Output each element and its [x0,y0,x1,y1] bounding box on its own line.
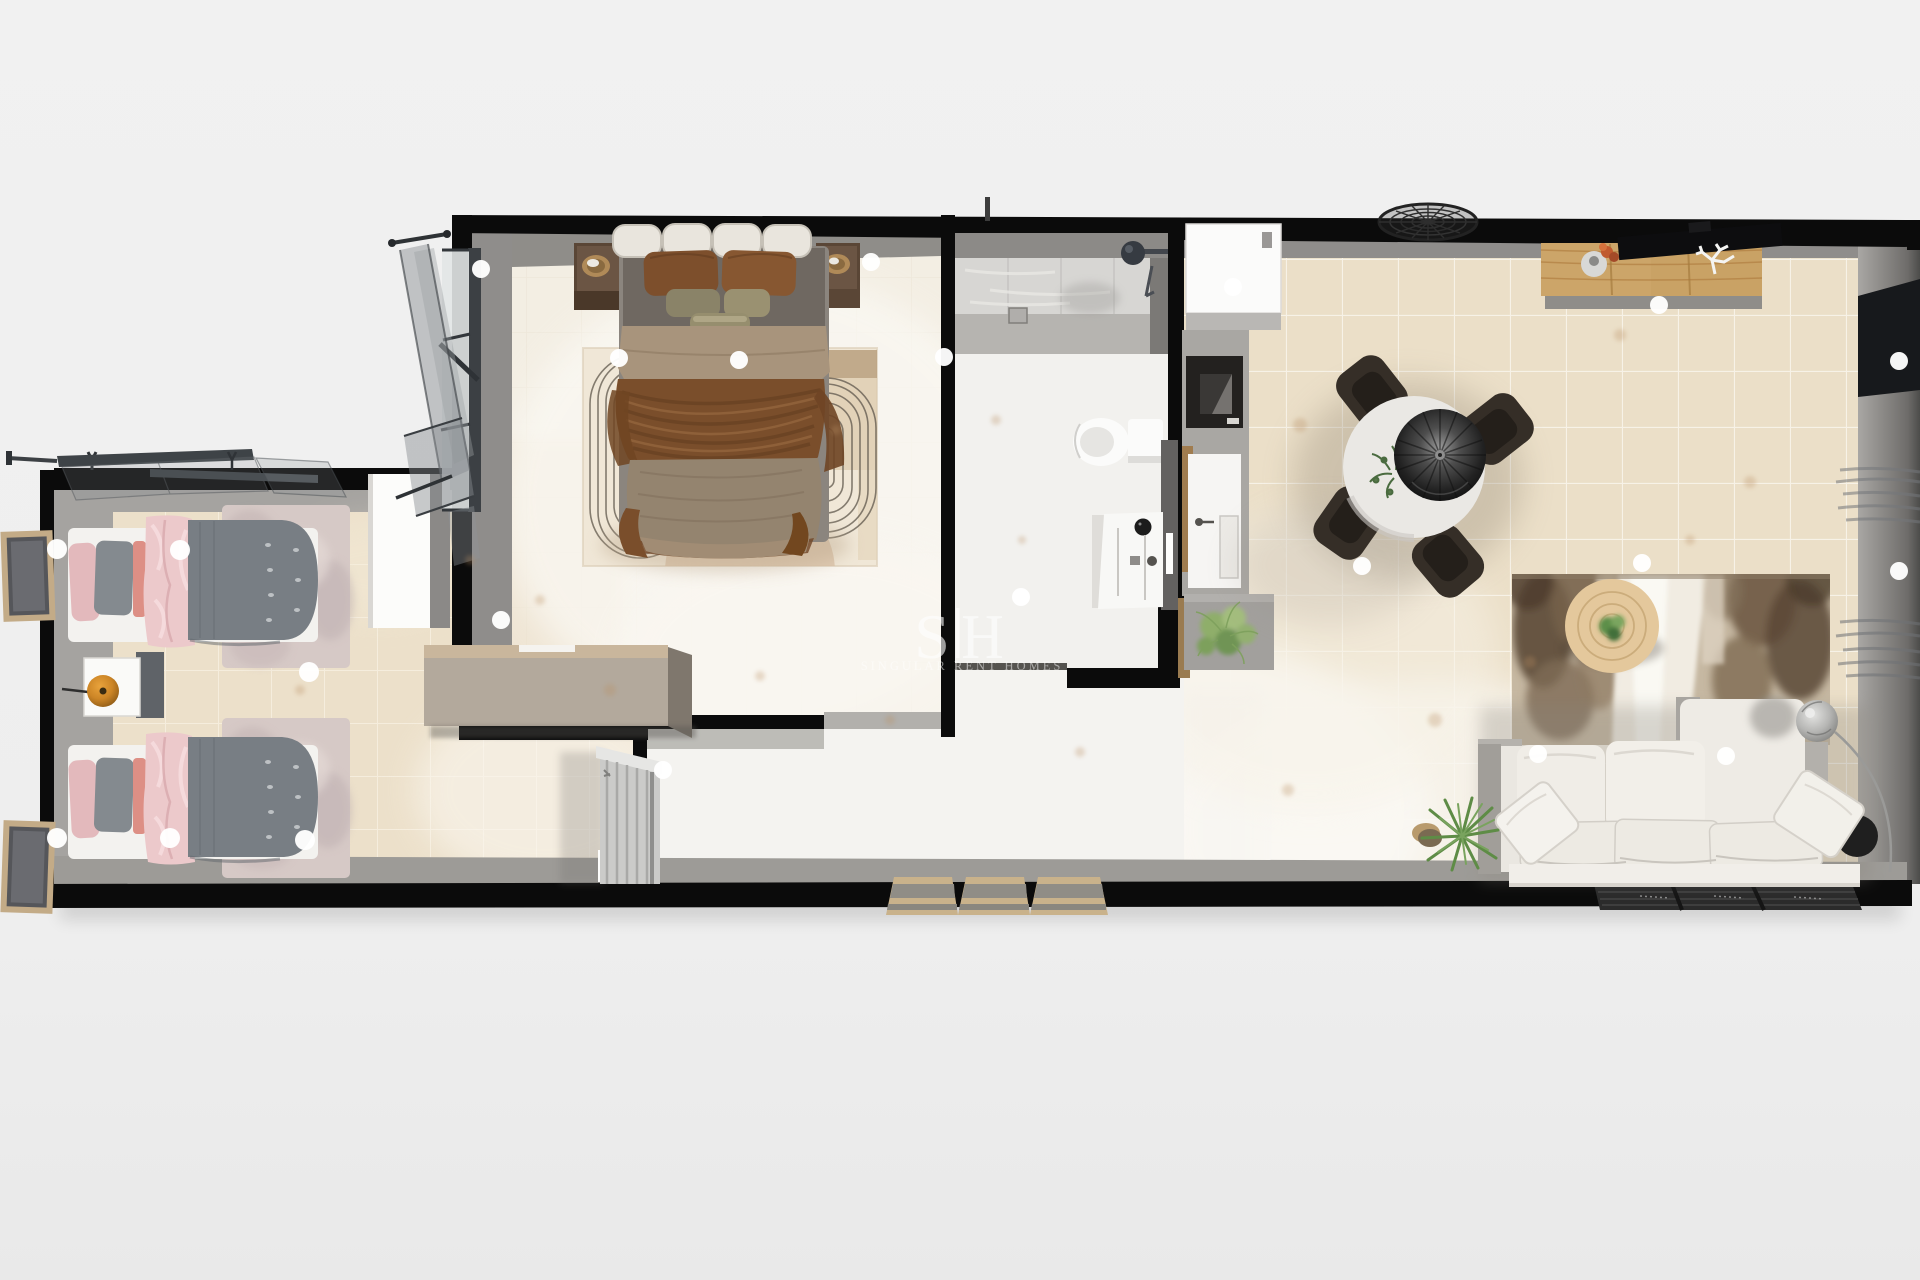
svg-text:SINGULAR RENT HOMES: SINGULAR RENT HOMES [861,659,1064,673]
